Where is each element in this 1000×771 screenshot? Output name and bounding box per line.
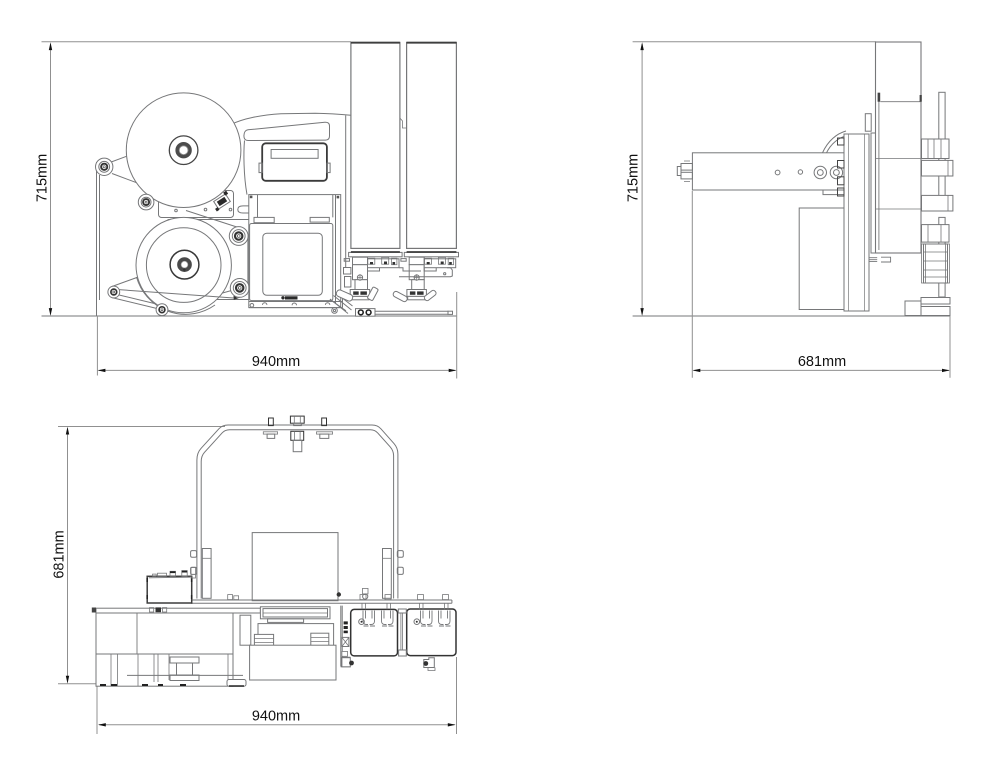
svg-text:681mm: 681mm: [52, 530, 68, 578]
svg-text:715mm: 715mm: [35, 154, 51, 202]
svg-text:681mm: 681mm: [798, 354, 846, 370]
svg-text:940mm: 940mm: [252, 709, 300, 725]
svg-text:940mm: 940mm: [252, 354, 300, 370]
svg-text:715mm: 715mm: [626, 154, 642, 202]
